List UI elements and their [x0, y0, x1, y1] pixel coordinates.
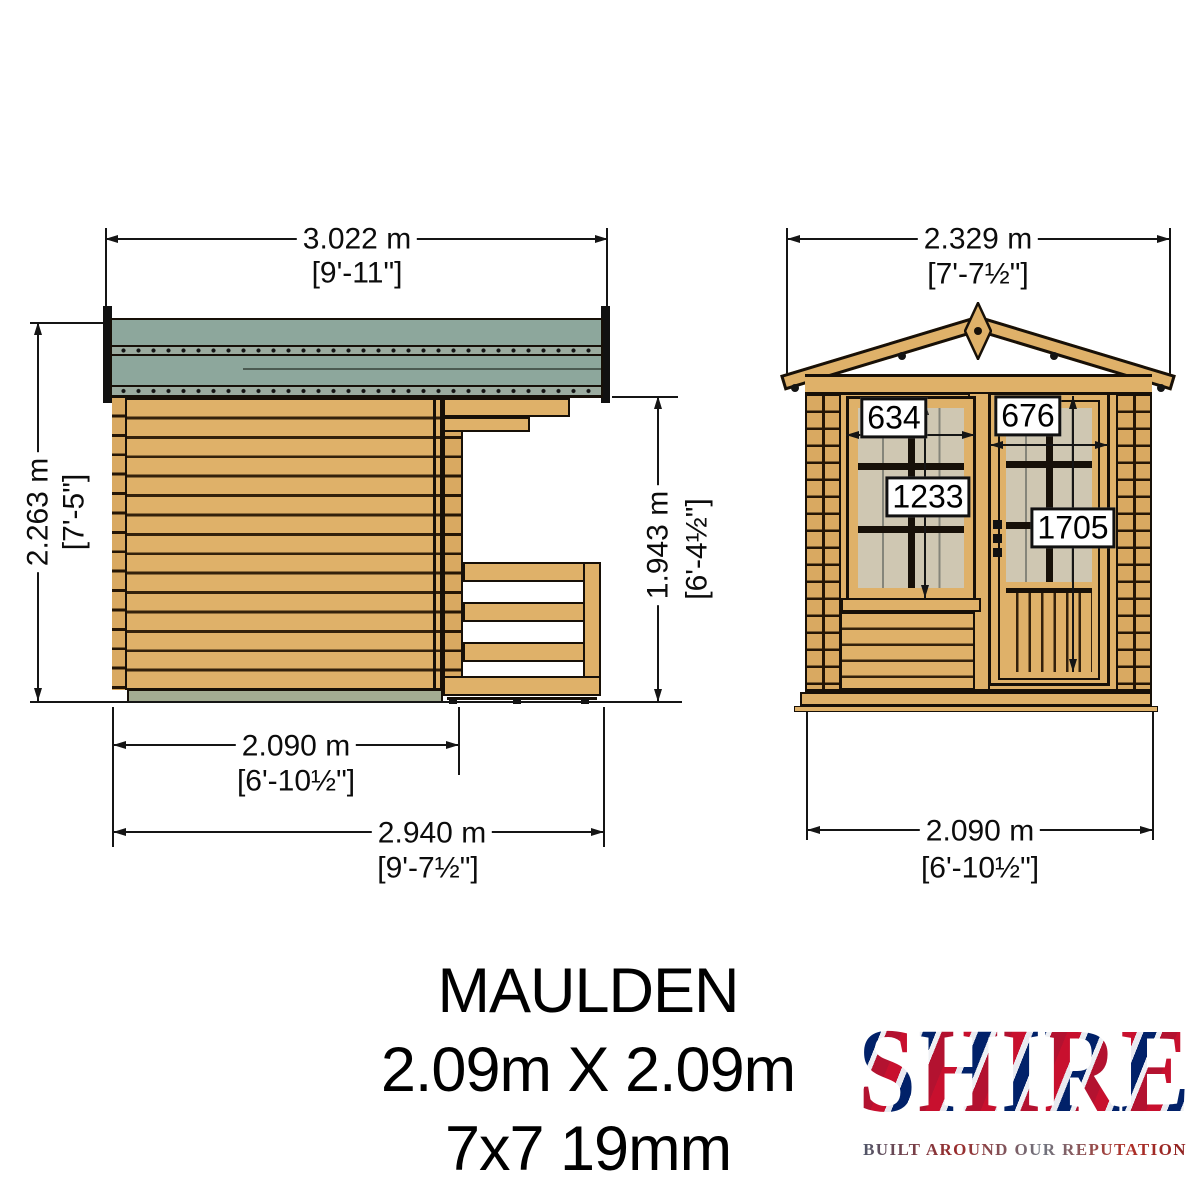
dim-label-imperial: [6'-10½"] — [915, 852, 1045, 884]
front-base-board — [800, 692, 1152, 706]
product-name: MAULDEN — [238, 952, 938, 1031]
dim-arrow — [962, 431, 975, 439]
under-window-cladding — [840, 612, 975, 690]
dim-arrow — [846, 431, 859, 439]
dim-arrow — [1095, 441, 1108, 449]
front-base-runner — [794, 706, 1158, 712]
veranda-rail-mid — [463, 602, 585, 622]
veranda-head-beam — [443, 398, 570, 417]
side-wall-cladding — [112, 398, 443, 690]
window-width-label: 634 — [860, 397, 927, 438]
dim-arrow — [105, 235, 118, 243]
dim-label-metric: 2.263 m — [22, 452, 54, 572]
product-spec: 7x7 19mm — [238, 1110, 938, 1189]
dim-label-metric: 2.090 m — [236, 730, 356, 762]
log-end-column-left — [805, 394, 841, 692]
front-wall-face-line — [433, 398, 436, 690]
dim-arrow — [446, 741, 459, 749]
dim-arrow — [1157, 235, 1170, 243]
veranda-head-beam-step — [443, 417, 530, 432]
door-height-label: 1705 — [1030, 507, 1115, 548]
corner-trim-log-ends — [112, 398, 127, 690]
dim-label-metric: 3.022 m — [297, 223, 417, 255]
door-width-label: 676 — [994, 395, 1061, 436]
window-height-label: 1233 — [885, 476, 970, 517]
log-column-divider — [822, 396, 825, 690]
log-end-column-right — [1116, 394, 1152, 692]
veranda-rail-low — [463, 642, 585, 662]
dim-label-imperial: [6'-10½"] — [231, 765, 361, 797]
dim-label-metric: 2.940 m — [372, 817, 492, 849]
dim-extension-line — [806, 712, 808, 840]
apex-finial — [964, 302, 992, 360]
ground-line — [30, 701, 682, 703]
dim-arrow — [654, 396, 662, 409]
window-pane — [858, 533, 908, 588]
window-pane — [915, 533, 965, 588]
dim-label-metric: 2.090 m — [920, 815, 1040, 847]
product-size: 2.09m X 2.09m — [238, 1031, 938, 1110]
dim-arrow — [595, 235, 608, 243]
dim-arrow — [113, 741, 126, 749]
dim-arrow — [787, 235, 800, 243]
dim-label-imperial: [9'-11"] — [306, 257, 409, 289]
dim-arrow — [34, 322, 42, 335]
dim-label-imperial: [9'-7½"] — [371, 852, 484, 884]
dim-arrow — [921, 585, 929, 598]
brand-wordmark: SHIRE — [855, 1011, 1195, 1132]
roof-screw — [1050, 352, 1058, 360]
dim-extension-line — [1169, 228, 1171, 378]
dim-label-metric: 1.943 m — [642, 485, 674, 605]
veranda-bearer — [447, 697, 597, 700]
dim-line — [990, 444, 1108, 446]
dim-arrow — [591, 828, 604, 836]
roof-screw — [898, 352, 906, 360]
log-column-divider — [1133, 396, 1136, 690]
veranda-floor-band — [443, 676, 601, 696]
title-block: MAULDEN 2.09m X 2.09m 7x7 19mm — [238, 952, 938, 1189]
dim-extension-line — [612, 396, 678, 398]
dim-label-imperial: [7'-5"] — [58, 468, 90, 556]
veranda-rail-top — [463, 562, 585, 582]
dim-arrow — [1069, 659, 1077, 672]
dim-label-metric: 2.329 m — [918, 223, 1038, 255]
door-hinge — [993, 548, 1002, 557]
window-sill — [841, 598, 981, 612]
dim-arrow — [654, 689, 662, 702]
dim-arrow — [1140, 826, 1153, 834]
dim-arrow — [1069, 396, 1077, 409]
brand-tagline: BUILT AROUND OUR REPUTATION — [855, 1140, 1195, 1160]
technical-drawing-sheet: 3.022 m [9'-11"] — [0, 0, 1200, 1200]
dim-extension-line — [603, 707, 605, 847]
dim-extension-line — [1152, 712, 1154, 840]
dim-label-imperial: [7'-7½"] — [921, 258, 1034, 290]
dim-arrow — [113, 828, 126, 836]
front-corner-log-ends — [443, 398, 463, 690]
dim-arrow — [34, 688, 42, 701]
dim-extension-line — [112, 707, 114, 847]
dim-arrow — [990, 441, 1003, 449]
dim-extension-line — [786, 228, 788, 378]
roof-screw — [791, 384, 799, 392]
door-hinge — [993, 520, 1002, 529]
roof-fascia-nail-strip — [112, 385, 601, 397]
door-bottom-boards — [1006, 588, 1092, 672]
shire-logo: SHIRE BUILT AROUND OUR REPUTATION — [855, 1028, 1195, 1160]
dim-arrow — [807, 826, 820, 834]
roof-far-edge-line — [243, 368, 601, 370]
dim-label-imperial: [6'-4½"] — [681, 492, 713, 605]
dim-line — [113, 831, 604, 833]
door-hinge — [993, 534, 1002, 543]
roof-screw — [1157, 384, 1165, 392]
roof-fascia-nail-strip — [112, 345, 601, 356]
